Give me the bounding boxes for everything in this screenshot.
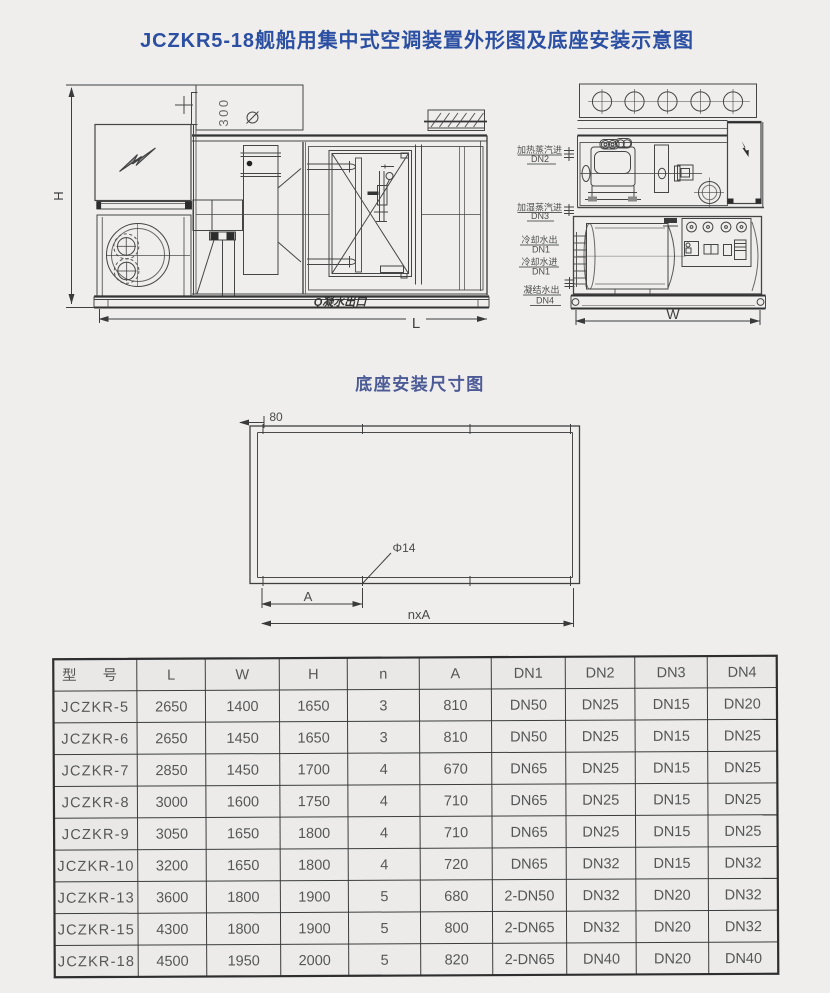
svg-text:300: 300 (216, 97, 231, 126)
svg-text:DN25: DN25 (582, 793, 619, 809)
svg-text:DN15: DN15 (653, 856, 690, 872)
svg-text:JCZKR-13: JCZKR-13 (58, 890, 135, 906)
svg-text:凝结水出: 凝结水出 (523, 284, 559, 295)
svg-text:DN20: DN20 (654, 919, 691, 935)
svg-text:1650: 1650 (227, 858, 259, 874)
svg-text:1800: 1800 (227, 890, 259, 906)
svg-text:720: 720 (444, 857, 468, 873)
svg-text:H: H (51, 191, 66, 200)
svg-text:1650: 1650 (227, 826, 259, 842)
svg-text:DN20: DN20 (724, 697, 761, 713)
svg-text:DN3: DN3 (657, 665, 686, 681)
svg-text:DN32: DN32 (725, 919, 762, 935)
svg-text:3: 3 (379, 698, 387, 714)
svg-text:DN4: DN4 (536, 296, 554, 306)
svg-text:2650: 2650 (155, 699, 187, 715)
svg-text:DN1: DN1 (514, 666, 543, 682)
svg-text:Φ14: Φ14 (393, 541, 416, 555)
svg-text:DN25: DN25 (724, 824, 761, 840)
svg-text:JCZKR-7: JCZKR-7 (62, 763, 130, 779)
svg-text:JCZKR-8: JCZKR-8 (62, 795, 130, 811)
svg-text:DN25: DN25 (582, 697, 619, 713)
svg-text:1650: 1650 (297, 699, 329, 715)
svg-text:1900: 1900 (298, 889, 330, 905)
svg-text:4300: 4300 (156, 922, 188, 938)
svg-text:冷却水进: 冷却水进 (521, 256, 557, 267)
svg-text:DN25: DN25 (582, 824, 619, 840)
svg-text:DN25: DN25 (724, 792, 761, 808)
svg-text:1800: 1800 (298, 826, 330, 842)
svg-text:L: L (167, 668, 175, 684)
svg-text:3000: 3000 (156, 795, 188, 811)
svg-text:JCZKR-10: JCZKR-10 (57, 859, 134, 875)
svg-text:DN65: DN65 (511, 825, 548, 841)
svg-text:A: A (450, 666, 460, 682)
svg-text:3050: 3050 (156, 827, 188, 843)
svg-text:1400: 1400 (226, 699, 258, 715)
svg-text:L: L (412, 315, 420, 332)
svg-text:DN65: DN65 (511, 857, 548, 873)
svg-text:DN20: DN20 (654, 951, 691, 967)
svg-text:DN15: DN15 (653, 824, 690, 840)
svg-text:820: 820 (445, 952, 469, 968)
svg-text:1700: 1700 (298, 762, 330, 778)
svg-text:1650: 1650 (297, 730, 329, 746)
svg-text:1950: 1950 (228, 953, 260, 969)
svg-text:3: 3 (380, 730, 388, 746)
svg-text:670: 670 (444, 762, 468, 778)
svg-text:JCZKR-15: JCZKR-15 (58, 922, 135, 938)
svg-text:DN1: DN1 (532, 245, 550, 255)
svg-text:5: 5 (380, 889, 388, 905)
svg-text:800: 800 (444, 921, 468, 937)
svg-text:2-DN65: 2-DN65 (505, 920, 555, 936)
svg-text:W: W (235, 667, 249, 683)
svg-text:nxA: nxA (408, 607, 431, 622)
svg-text:710: 710 (444, 825, 468, 841)
svg-text:3200: 3200 (156, 858, 188, 874)
svg-text:JCZKR-9: JCZKR-9 (62, 827, 130, 843)
svg-text:DN25: DN25 (582, 729, 619, 745)
svg-text:DN32: DN32 (725, 887, 762, 903)
svg-text:680: 680 (444, 889, 468, 905)
svg-text:4500: 4500 (156, 954, 188, 970)
svg-text:1900: 1900 (298, 921, 330, 937)
svg-text:DN50: DN50 (510, 729, 547, 745)
svg-text:2650: 2650 (155, 731, 187, 747)
svg-text:DN65: DN65 (510, 793, 547, 809)
svg-text:DN40: DN40 (725, 951, 762, 967)
svg-text:DN1: DN1 (532, 267, 550, 277)
svg-text:DN25: DN25 (724, 728, 761, 744)
svg-text:DN2: DN2 (586, 665, 615, 681)
svg-text:DN15: DN15 (653, 729, 690, 745)
svg-text:型 号: 型 号 (62, 667, 128, 684)
svg-text:DN65: DN65 (510, 761, 547, 777)
svg-text:810: 810 (443, 698, 467, 714)
svg-text:底座安装尺寸图: 底座安装尺寸图 (355, 374, 485, 394)
svg-text:2-DN50: 2-DN50 (504, 888, 554, 904)
svg-text:4: 4 (380, 826, 388, 842)
svg-text:DN40: DN40 (583, 952, 620, 968)
svg-text:DN25: DN25 (582, 761, 619, 777)
svg-text:DN20: DN20 (654, 888, 691, 904)
svg-text:DN4: DN4 (728, 665, 757, 681)
svg-text:1450: 1450 (226, 731, 258, 747)
svg-text:2000: 2000 (299, 953, 331, 969)
svg-text:A: A (304, 589, 313, 604)
svg-text:DN50: DN50 (510, 698, 547, 714)
svg-text:810: 810 (443, 730, 467, 746)
svg-text:1800: 1800 (227, 922, 259, 938)
svg-text:3600: 3600 (156, 890, 188, 906)
svg-text:4: 4 (380, 762, 388, 778)
svg-text:1800: 1800 (298, 858, 330, 874)
svg-text:JCZKR-5: JCZKR-5 (61, 700, 129, 716)
svg-text:2-DN65: 2-DN65 (505, 952, 555, 968)
svg-text:W: W (666, 306, 680, 322)
svg-text:4: 4 (380, 857, 388, 873)
svg-text:JCZKR-6: JCZKR-6 (61, 731, 129, 747)
svg-text:JCZKR-18: JCZKR-18 (58, 954, 135, 970)
svg-text:710: 710 (444, 793, 468, 809)
svg-text:DN25: DN25 (724, 760, 761, 776)
svg-text:DN15: DN15 (653, 792, 690, 808)
svg-text:4: 4 (380, 794, 388, 810)
svg-text:Q凝水出口: Q凝水出口 (314, 296, 368, 309)
svg-text:1600: 1600 (227, 794, 259, 810)
svg-text:5: 5 (380, 921, 388, 937)
svg-text:H: H (308, 667, 319, 683)
svg-text:DN15: DN15 (653, 760, 690, 776)
svg-text:n: n (379, 667, 387, 683)
svg-text:冷却水出: 冷却水出 (521, 234, 557, 245)
svg-text:80: 80 (269, 410, 283, 424)
svg-text:1750: 1750 (298, 794, 330, 810)
svg-text:JCZKR5-18舰船用集中式空调装置外形图及底座安装示意图: JCZKR5-18舰船用集中式空调装置外形图及底座安装示意图 (140, 28, 694, 52)
svg-text:DN32: DN32 (724, 856, 761, 872)
svg-text:DN32: DN32 (582, 856, 619, 872)
svg-text:5: 5 (381, 953, 389, 969)
svg-text:DN15: DN15 (653, 697, 690, 713)
svg-text:2850: 2850 (155, 763, 187, 779)
svg-text:DN32: DN32 (583, 888, 620, 904)
svg-text:1450: 1450 (227, 763, 259, 779)
svg-text:DN32: DN32 (583, 920, 620, 936)
